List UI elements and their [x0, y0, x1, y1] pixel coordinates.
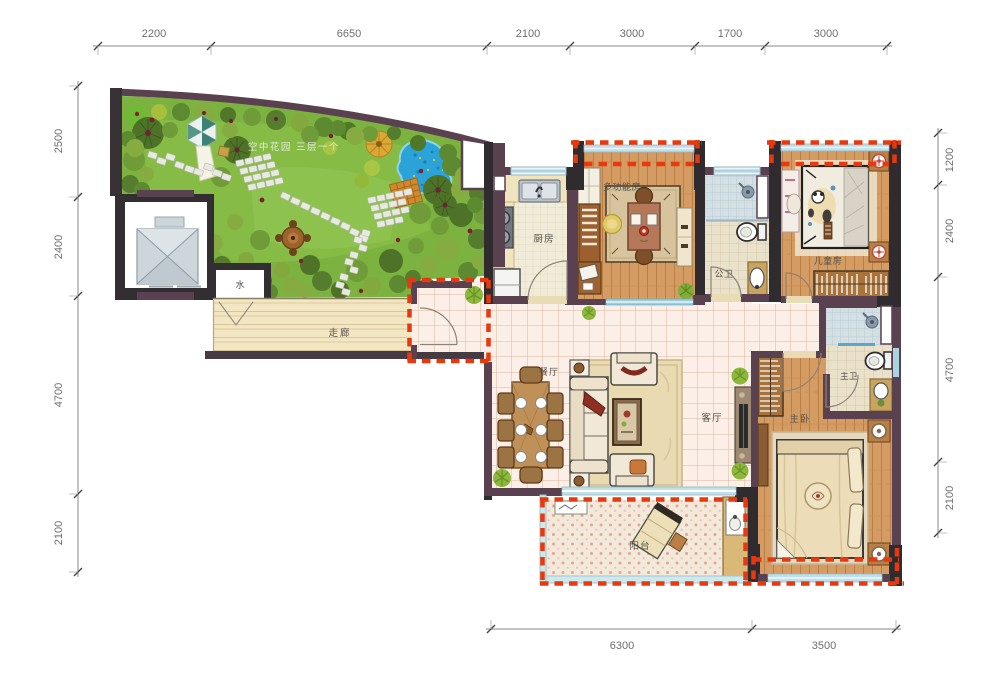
svg-text:主卫: 主卫	[840, 371, 858, 381]
svg-text:6650: 6650	[337, 28, 361, 40]
svg-text:厨房: 厨房	[533, 233, 554, 245]
svg-text:客厅: 客厅	[701, 412, 722, 424]
svg-text:水: 水	[235, 279, 244, 290]
svg-text:3000: 3000	[620, 28, 644, 40]
svg-text:3500: 3500	[812, 640, 836, 652]
svg-text:2100: 2100	[53, 521, 65, 545]
svg-text:多功能房: 多功能房	[603, 181, 641, 192]
svg-text:2400: 2400	[53, 235, 65, 259]
svg-text:2400: 2400	[944, 219, 956, 243]
svg-text:1200: 1200	[944, 148, 956, 172]
svg-text:主卧: 主卧	[789, 413, 810, 425]
svg-text:儿童房: 儿童房	[814, 255, 843, 266]
svg-text:餐厅: 餐厅	[539, 366, 559, 377]
svg-text:4700: 4700	[53, 383, 65, 407]
svg-text:4700: 4700	[944, 358, 956, 382]
svg-text:6300: 6300	[610, 640, 634, 652]
svg-text:2500: 2500	[53, 129, 65, 153]
svg-text:2100: 2100	[516, 28, 540, 40]
svg-text:走廊: 走廊	[328, 327, 351, 339]
svg-text:阳台: 阳台	[629, 540, 650, 552]
svg-text:2200: 2200	[142, 28, 166, 40]
svg-text:1700: 1700	[718, 28, 742, 40]
svg-text:空中花园 三层一个: 空中花园 三层一个	[248, 141, 340, 153]
svg-text:3000: 3000	[814, 28, 838, 40]
svg-text:2100: 2100	[944, 486, 956, 510]
